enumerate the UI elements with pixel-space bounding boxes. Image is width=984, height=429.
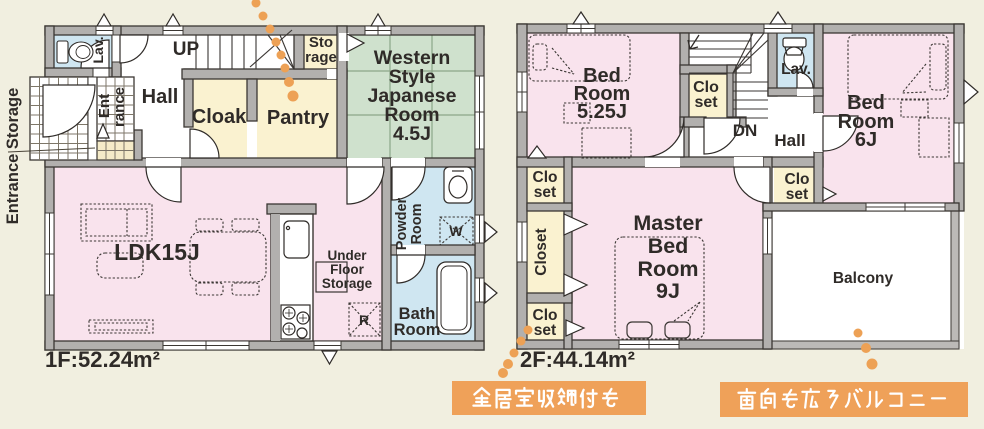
svg-text:Room: Room	[638, 257, 699, 281]
svg-text:Room: Room	[409, 203, 425, 244]
svg-text:9J: 9J	[656, 279, 680, 303]
svg-text:Bed: Bed	[648, 234, 689, 258]
svg-text:Powder: Powder	[394, 197, 410, 250]
svg-text:2F:44.14m²: 2F:44.14m²	[520, 347, 635, 372]
svg-text:5.25J: 5.25J	[577, 101, 627, 123]
svg-text:Closet: Closet	[533, 228, 550, 275]
svg-text:set: set	[534, 184, 556, 201]
svg-text:Cloak: Cloak	[192, 106, 247, 128]
svg-text:4.5J: 4.5J	[393, 123, 431, 145]
svg-text:rance: rance	[111, 87, 128, 127]
svg-text:Storage: Storage	[322, 276, 373, 291]
svg-text:Lav.: Lav.	[90, 37, 106, 64]
svg-text:Hall: Hall	[142, 86, 179, 108]
svg-text:set: set	[694, 94, 718, 111]
svg-text:Floor: Floor	[330, 262, 364, 277]
svg-text:set: set	[786, 186, 808, 203]
svg-text:LDK15J: LDK15J	[114, 239, 200, 265]
svg-text:Entrance Storage: Entrance Storage	[4, 88, 22, 225]
svg-text:Balcony: Balcony	[833, 270, 894, 287]
svg-text:Hall: Hall	[774, 131, 805, 150]
svg-text:Under: Under	[327, 248, 367, 263]
svg-text:UP: UP	[173, 39, 200, 60]
svg-text:1F:52.24m²: 1F:52.24m²	[45, 347, 160, 372]
svg-text:set: set	[534, 322, 556, 339]
svg-text:Lav.: Lav.	[781, 61, 811, 78]
svg-text:Room: Room	[394, 321, 441, 339]
svg-text:W: W	[449, 223, 463, 239]
svg-text:Pantry: Pantry	[267, 107, 330, 129]
svg-text:rage: rage	[305, 49, 337, 66]
svg-text:R: R	[359, 312, 369, 328]
svg-text:6J: 6J	[855, 129, 877, 151]
svg-text:Master: Master	[633, 211, 703, 235]
svg-text:DN: DN	[733, 121, 758, 140]
